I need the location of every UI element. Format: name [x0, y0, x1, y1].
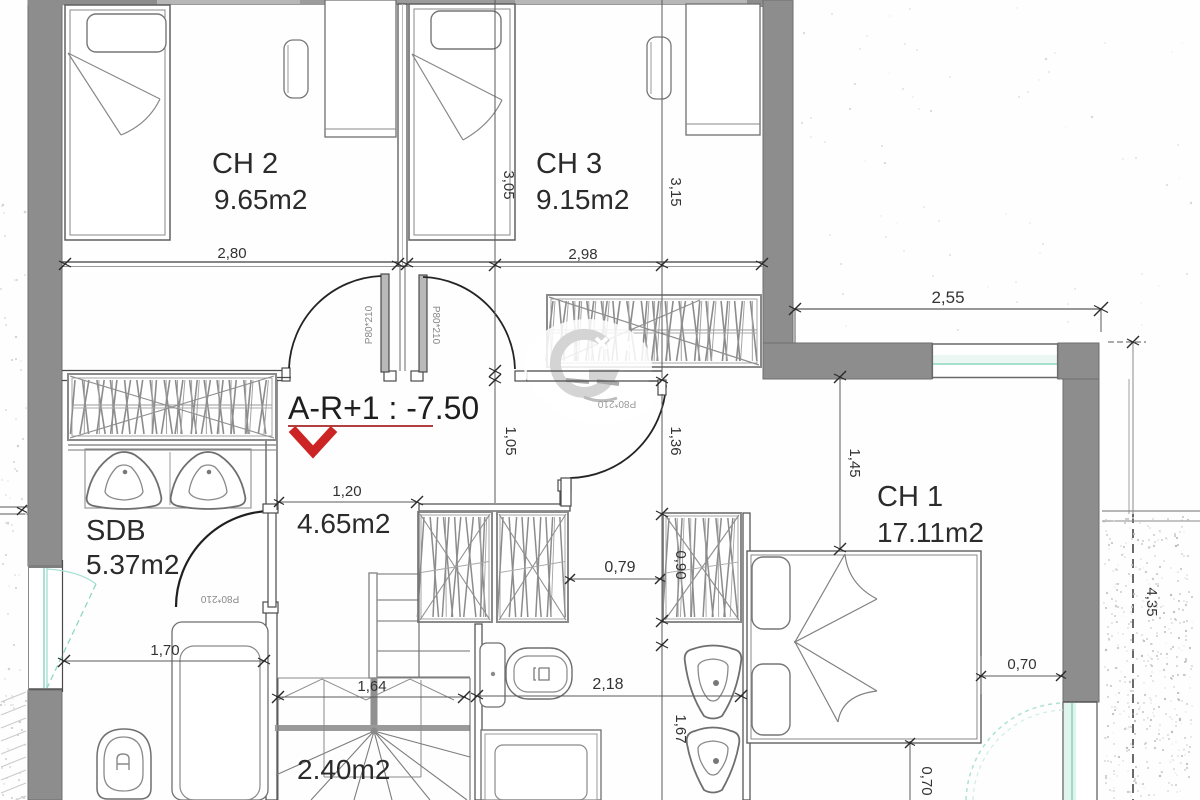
svg-text:CH 2: CH 2 — [212, 148, 278, 180]
svg-text:2.40m2: 2.40m2 — [297, 754, 390, 785]
svg-text:4,35: 4,35 — [1143, 587, 1160, 616]
svg-text:P80*210: P80*210 — [200, 593, 239, 604]
svg-text:2,98: 2,98 — [568, 246, 597, 263]
svg-text:1,45: 1,45 — [846, 448, 863, 477]
svg-text:0,70: 0,70 — [918, 766, 935, 795]
svg-text:0,70: 0,70 — [1007, 656, 1036, 673]
svg-text:CH 3: CH 3 — [536, 148, 602, 180]
svg-text:P80*210: P80*210 — [364, 305, 375, 344]
svg-text:4.65m2: 4.65m2 — [297, 508, 390, 539]
svg-text:P80*210: P80*210 — [430, 306, 441, 345]
svg-text:1,70: 1,70 — [150, 642, 179, 659]
svg-text:1,64: 1,64 — [357, 678, 386, 695]
svg-text:1,20: 1,20 — [332, 483, 361, 500]
svg-text:2,18: 2,18 — [592, 676, 623, 693]
svg-text:0,79: 0,79 — [604, 559, 635, 576]
svg-text:2,80: 2,80 — [217, 245, 246, 262]
svg-text:3,15: 3,15 — [667, 177, 684, 206]
svg-text:1,36: 1,36 — [667, 426, 684, 455]
svg-text:A-R+1 : -7.50: A-R+1 : -7.50 — [288, 390, 479, 426]
svg-text:1,67: 1,67 — [672, 714, 689, 743]
svg-text:17.11m2: 17.11m2 — [877, 517, 984, 548]
svg-text:5.37m2: 5.37m2 — [86, 549, 179, 580]
svg-text:CH 1: CH 1 — [877, 481, 943, 513]
svg-text:1,05: 1,05 — [502, 426, 519, 455]
svg-text:P80*210: P80*210 — [597, 398, 636, 409]
svg-text:SDB: SDB — [86, 515, 146, 547]
svg-text:9.65m2: 9.65m2 — [214, 184, 307, 215]
svg-text:0,90: 0,90 — [672, 550, 689, 579]
svg-text:9.15m2: 9.15m2 — [536, 184, 629, 215]
svg-text:2,55: 2,55 — [931, 288, 964, 307]
svg-text:3,05: 3,05 — [500, 170, 517, 199]
